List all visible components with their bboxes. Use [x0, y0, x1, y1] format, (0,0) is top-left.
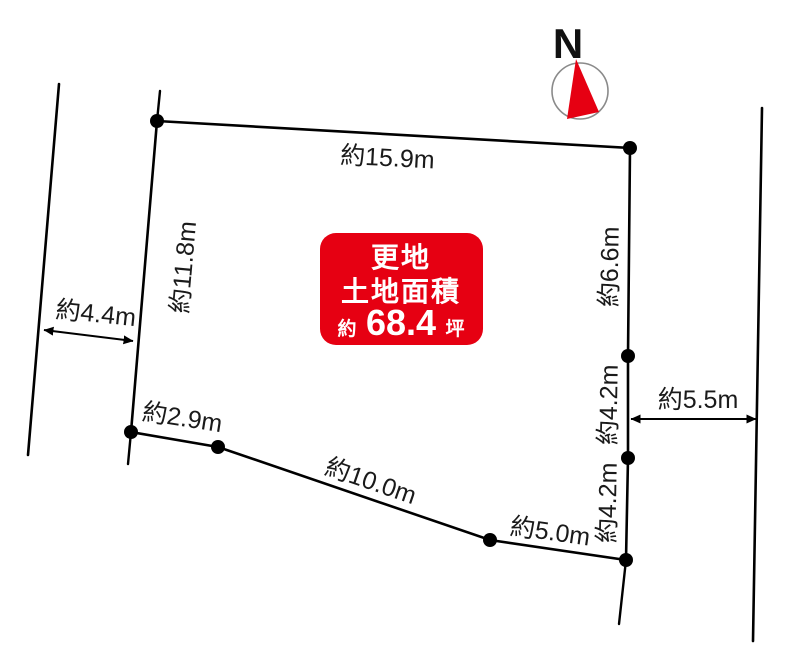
dim-right-middle-edge-label: 約4.2m: [594, 364, 623, 445]
boundary-point: [623, 141, 637, 155]
boundary-point: [621, 349, 635, 363]
north-letter: N: [553, 20, 583, 67]
north-compass: N: [552, 20, 608, 119]
north-arrow-needle: [567, 59, 599, 119]
boundary-point: [483, 533, 497, 547]
area-badge: 更地 土地面積 約 68.4 坪: [320, 233, 483, 345]
boundary-point: [211, 440, 225, 454]
left-road-width-label: 約4.4m: [54, 296, 137, 332]
boundary-point: [619, 553, 633, 567]
right-road-width-label: 約5.5m: [658, 386, 739, 414]
land-plot-diagram: 約15.9m 約11.8m 約6.6m 約4.2m 約4.2m 約2.9m 約1…: [0, 0, 800, 652]
right-road-outer-line: [753, 108, 762, 641]
boundary-point: [150, 114, 164, 128]
dim-right-lower-edge-label: 約4.2m: [593, 462, 622, 543]
dim-top-edge-label: 約15.9m: [340, 142, 436, 175]
plot-diagram-canvas: 約15.9m 約11.8m 約6.6m 約4.2m 約4.2m 約2.9m 約1…: [0, 0, 800, 652]
area-value-prefix: 約: [337, 317, 356, 340]
boundary-point: [621, 451, 635, 465]
left-road-outer-line: [28, 84, 59, 455]
area-badge-line1: 更地: [371, 242, 431, 273]
area-value-unit: 坪: [445, 318, 464, 340]
dim-right-upper-edge-label: 約6.6m: [595, 226, 624, 307]
dim-bottom-edge-label: 約10.0m: [321, 453, 419, 510]
dim-left-edge-label: 約11.8m: [166, 220, 202, 315]
dim-bottom-left-edge-label: 約2.9m: [140, 398, 224, 438]
area-value: 68.4: [366, 302, 436, 343]
boundary-extension-bottom-right: [619, 560, 626, 624]
left-road-width-arrow: [44, 330, 133, 341]
boundary-point: [124, 425, 138, 439]
